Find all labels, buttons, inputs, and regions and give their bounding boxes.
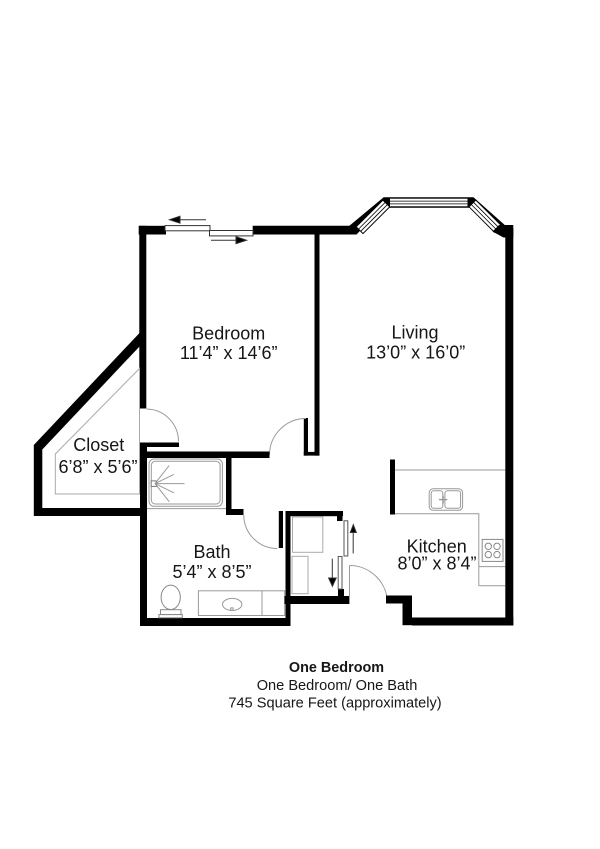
svg-text:One Bedroom/ One Bath: One Bedroom/ One Bath (257, 678, 418, 694)
svg-text:745 Square Feet (approximately: 745 Square Feet (approximately) (228, 696, 441, 712)
svg-text:Bedroom: Bedroom (192, 324, 265, 344)
svg-text:5’4” x 8’5”: 5’4” x 8’5” (172, 562, 251, 582)
svg-text:13’0” x 16’0”: 13’0” x 16’0” (366, 343, 465, 363)
svg-text:Living: Living (391, 323, 438, 343)
svg-text:8’0” x 8’4”: 8’0” x 8’4” (397, 554, 476, 574)
svg-text:11’4” x 14’6”: 11’4” x 14’6” (180, 343, 278, 363)
svg-text:6’8” x 5’6”: 6’8” x 5’6” (58, 457, 137, 477)
svg-text:Bath: Bath (193, 542, 230, 562)
svg-text:One Bedroom: One Bedroom (289, 660, 384, 676)
svg-text:Closet: Closet (73, 435, 124, 455)
